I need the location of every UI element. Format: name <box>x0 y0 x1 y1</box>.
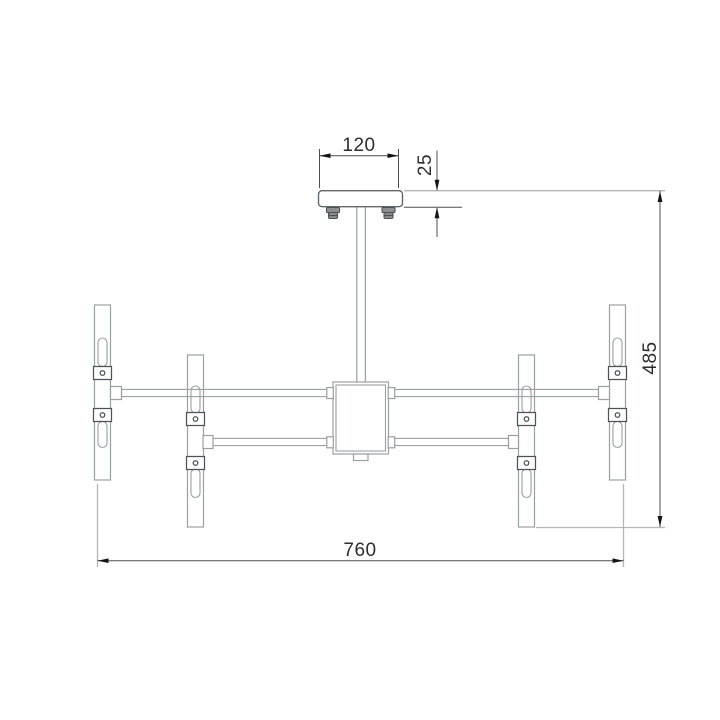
arm-upper-right <box>389 389 599 396</box>
hub-bottom-tab <box>354 454 369 461</box>
arm-upper-left <box>122 389 334 396</box>
mounting-screw-right <box>382 208 395 219</box>
dim-arrow-left <box>98 558 109 563</box>
tube-bar-outer-right <box>610 305 626 480</box>
dim-canopy-width: 120 <box>320 135 399 188</box>
dim-label-canopy-height: 25 <box>415 154 436 176</box>
tube-bar-outer-left <box>95 305 111 480</box>
dim-arrow-right <box>613 558 624 563</box>
mounting-screw-left <box>327 208 340 219</box>
stem-rod <box>357 206 366 383</box>
dim-label-canopy-width: 120 <box>342 135 375 156</box>
arm-connector-inner-right <box>509 436 519 449</box>
dim-label-fixture-width: 760 <box>343 540 376 561</box>
dim-arrow-up <box>658 191 663 202</box>
dim-arrow-down <box>658 516 663 527</box>
dim-fixture-width: 760 <box>98 484 624 567</box>
technical-drawing-canvas: 120 25 485 760 <box>0 0 720 720</box>
dim-canopy-height: 25 <box>404 151 665 238</box>
center-hub <box>327 382 395 461</box>
arm-connector-outer-right <box>599 387 610 400</box>
arm-lower-right <box>389 438 509 445</box>
arm-lower-left <box>213 438 333 445</box>
dim-label-fixture-height: 485 <box>640 341 661 374</box>
tube-bar-inner-right <box>519 355 535 527</box>
chandelier-dimension-drawing: 120 25 485 760 <box>0 0 720 720</box>
arm-connector-outer-left <box>111 387 122 400</box>
dim-arrow-down <box>435 180 440 191</box>
dim-arrow-up <box>435 207 440 218</box>
dim-fixture-height: 485 <box>536 191 665 528</box>
arm-connector-inner-left <box>203 436 213 449</box>
dim-arrow-left <box>320 153 331 158</box>
dim-arrow-right <box>388 153 399 158</box>
tube-bar-inner-left <box>188 355 204 527</box>
